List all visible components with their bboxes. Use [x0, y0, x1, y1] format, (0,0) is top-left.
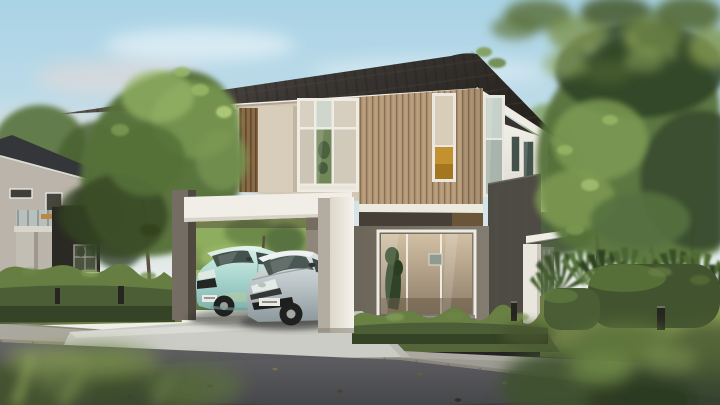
side-mirror [246, 257, 252, 261]
bollard-light [55, 288, 60, 304]
left-hedge [0, 264, 175, 324]
slim-window-1 [511, 136, 520, 172]
neighbor-window-slit [10, 189, 32, 198]
bollard-light [118, 286, 124, 304]
upper-window [297, 98, 359, 192]
stucco-wall [258, 106, 298, 192]
interior-picture [429, 254, 442, 265]
amber-window [432, 93, 456, 182]
sliding-glass-door [378, 231, 475, 317]
house-rendering [0, 0, 720, 405]
bollard-light [657, 306, 665, 330]
side-mirror [309, 263, 316, 267]
carport-white-pillar [318, 197, 354, 333]
bollard-light [511, 301, 517, 321]
